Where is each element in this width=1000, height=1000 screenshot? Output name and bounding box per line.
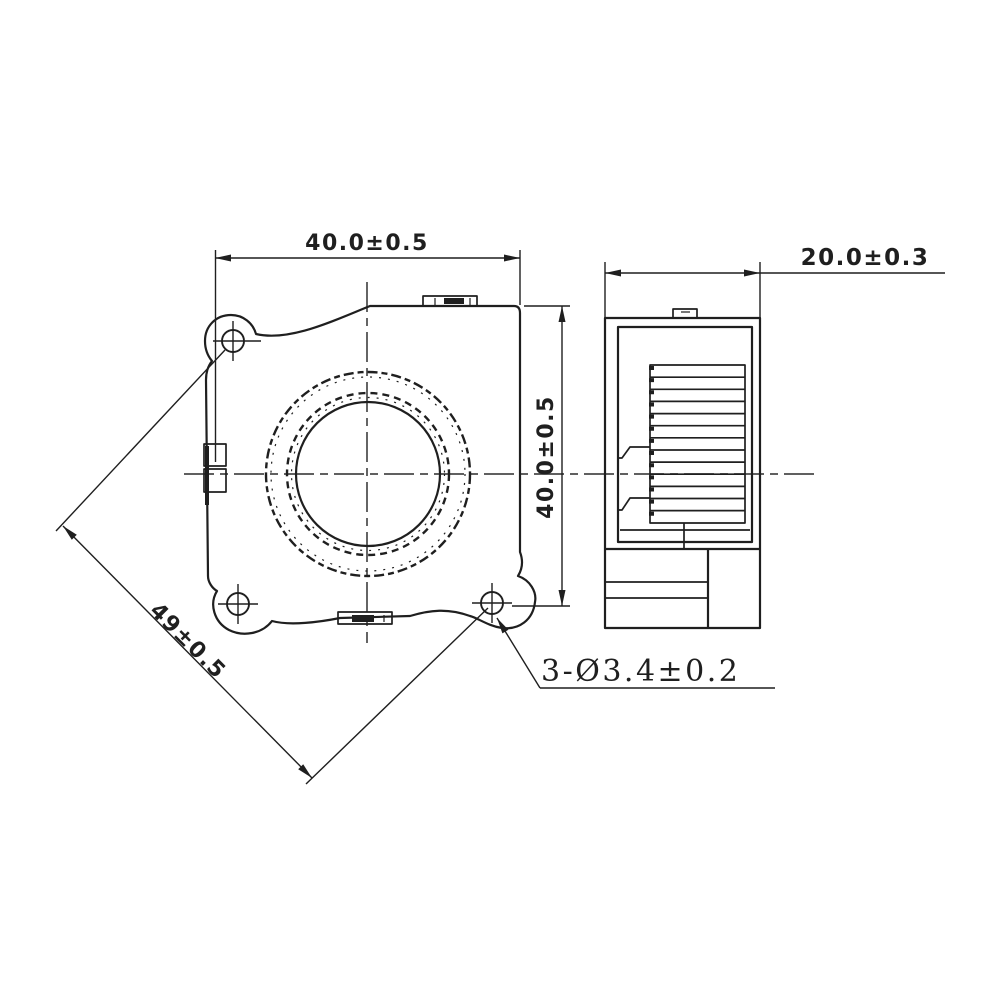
base-section <box>605 549 760 628</box>
blower-fan-technical-drawing: 40.0±0.5 40.0±0.5 20.0±0.3 49±0.5 3-Ø3.4… <box>0 0 1000 1000</box>
impeller-ribs <box>650 365 745 523</box>
dimension-side-depth: 20.0±0.3 <box>605 245 945 318</box>
front-height-label: 40.0±0.5 <box>534 395 559 519</box>
fan-body-outline <box>205 306 535 634</box>
impeller-inlet-circle <box>296 402 440 546</box>
side-view <box>605 309 760 628</box>
side-top-tab <box>673 309 697 318</box>
diagonal-label: 49±0.5 <box>144 598 230 684</box>
side-depth-label: 20.0±0.3 <box>801 245 930 271</box>
dimension-diagonal: 49±0.5 <box>56 350 488 784</box>
inlet-opening <box>266 372 470 576</box>
top-tab <box>423 296 477 306</box>
mounting-hole-bottom-left <box>218 584 258 624</box>
holes-label: 3-Ø3.4±0.2 <box>541 654 740 689</box>
front-width-label: 40.0±0.5 <box>305 231 429 256</box>
drawing-canvas: 40.0±0.5 40.0±0.5 20.0±0.3 49±0.5 3-Ø3.4… <box>0 0 1000 1000</box>
